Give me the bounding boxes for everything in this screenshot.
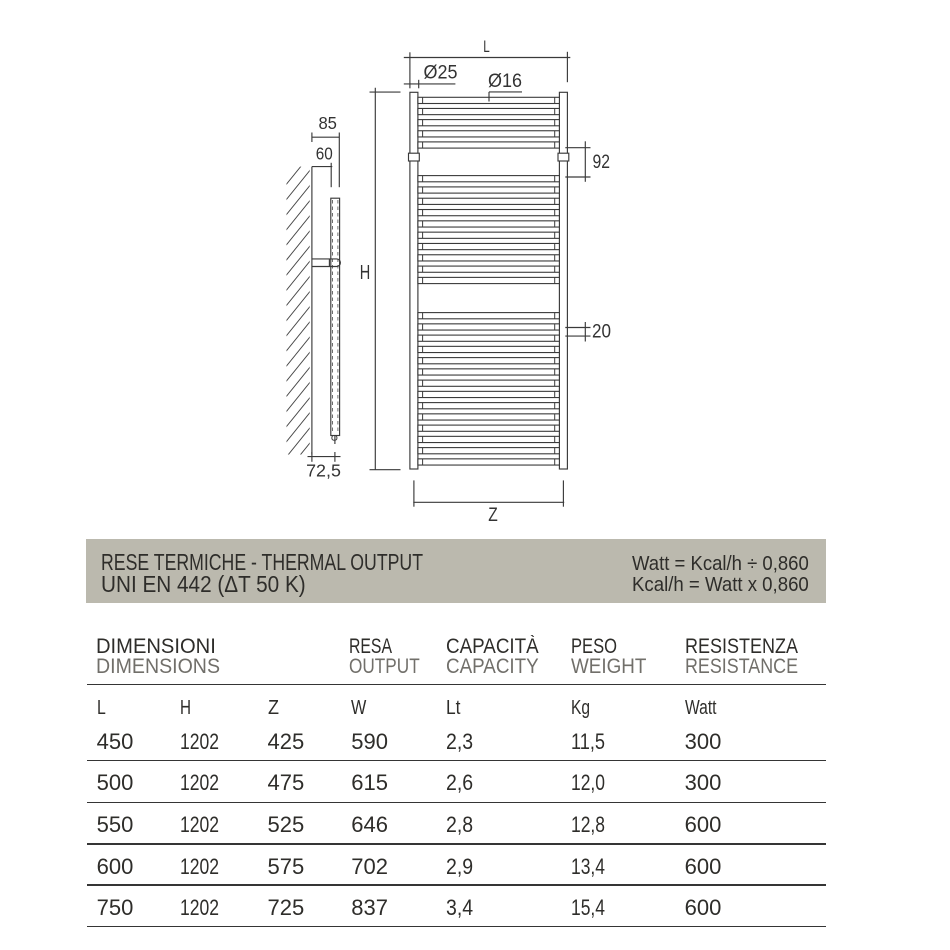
svg-text:Ø16: Ø16: [488, 71, 522, 92]
svg-text:72,5: 72,5: [306, 461, 341, 481]
svg-text:Z: Z: [488, 505, 498, 526]
svg-text:L: L: [483, 37, 490, 56]
svg-text:92: 92: [593, 152, 611, 173]
svg-text:20: 20: [592, 321, 611, 342]
svg-text:85: 85: [318, 113, 337, 133]
svg-text:Ø25: Ø25: [424, 63, 458, 84]
svg-text:60: 60: [316, 143, 333, 163]
svg-text:H: H: [360, 262, 371, 284]
